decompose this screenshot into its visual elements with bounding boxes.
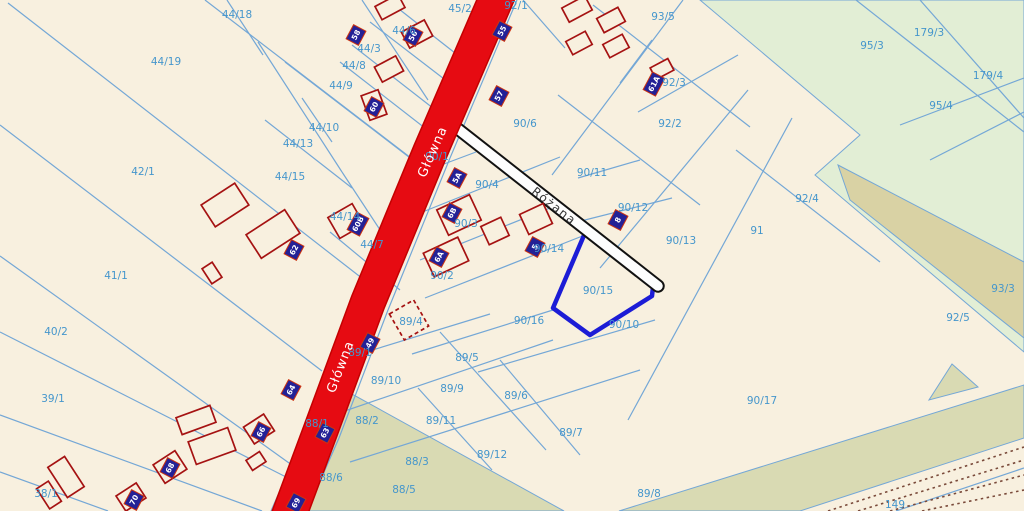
parcel-label-44-9: 44/9: [329, 80, 353, 92]
parcel-label-95-4: 95/4: [929, 100, 953, 112]
parcel-label-93-3: 93/3: [991, 283, 1015, 295]
parcel-label-89-9: 89/9: [440, 383, 464, 395]
parcel-label-44-8: 44/8: [342, 60, 366, 72]
parcel-label-92-3: 92/3: [662, 77, 686, 89]
map-viewport[interactable]: 585655605761A5A60B626B6A5864636649687069…: [0, 0, 1024, 511]
parcel-label-88-1: 88/1: [305, 418, 329, 430]
parcel-label-95-3: 95/3: [860, 40, 884, 52]
parcel-label-90-10: 90/10: [609, 319, 639, 331]
parcel-label-44-10: 44/10: [309, 122, 339, 134]
parcel-label-93-5: 93/5: [651, 11, 675, 23]
parcel-label-44-14: 44/14: [330, 211, 361, 223]
parcel-label-90-11: 90/11: [577, 167, 607, 179]
parcel-label-89-6: 89/6: [504, 390, 528, 402]
parcel-label-179-4: 179/4: [973, 70, 1004, 82]
parcel-label-89-10: 89/10: [371, 375, 401, 387]
parcel-label-39-1: 39/1: [41, 393, 65, 405]
parcel-label-92-1: 92/1: [504, 0, 528, 12]
parcel-label-90-4: 90/4: [475, 179, 499, 191]
parcel-label-44-19: 44/19: [151, 56, 181, 68]
parcel-label-91: 91: [750, 225, 763, 237]
parcel-label-41-1: 41/1: [104, 270, 128, 282]
parcel-label-90-14: 90/14: [534, 243, 565, 255]
parcel-label-90-2: 90/2: [430, 270, 454, 282]
cadastral-map-canvas[interactable]: 585655605761A5A60B626B6A5864636649687069…: [0, 0, 1024, 511]
parcel-label-44-15: 44/15: [275, 171, 305, 183]
parcel-label-179-3: 179/3: [914, 27, 944, 39]
parcel-label-89-5: 89/5: [455, 352, 479, 364]
parcel-label-89-8: 89/8: [637, 488, 661, 500]
parcel-label-44-7: 44/7: [360, 239, 384, 251]
parcel-label-44-18: 44/18: [222, 9, 252, 21]
parcel-label-90-12: 90/12: [618, 202, 648, 214]
parcel-label-88-6: 88/6: [319, 472, 343, 484]
parcel-label-149: 149: [885, 499, 905, 511]
parcel-label-90-16: 90/16: [514, 315, 545, 327]
parcel-label-89-12: 89/12: [477, 449, 507, 461]
parcel-label-90-3: 90/3: [454, 218, 478, 230]
parcel-label-89-7: 89/7: [559, 427, 583, 439]
parcel-label-45-2: 45/2: [448, 3, 472, 15]
parcel-label-90-6: 90/6: [513, 118, 537, 130]
parcel-label-92-5: 92/5: [946, 312, 970, 324]
parcel-label-90-13: 90/13: [666, 235, 696, 247]
parcel-label-89-4: 89/4: [399, 316, 423, 328]
parcel-label-88-3: 88/3: [405, 456, 429, 468]
parcel-label-88-2: 88/2: [355, 415, 379, 427]
parcel-label-44-6: 44/6: [392, 25, 416, 37]
parcel-label-88-5: 88/5: [392, 484, 416, 496]
parcel-label-89-11: 89/11: [426, 415, 456, 427]
parcel-label-44-13: 44/13: [283, 138, 313, 150]
parcel-label-42-1: 42/1: [131, 166, 155, 178]
parcel-label-38-1: 38/1: [34, 488, 58, 500]
parcel-label-90-15: 90/15: [583, 285, 613, 297]
parcel-label-92-2: 92/2: [658, 118, 682, 130]
parcel-label-90-17: 90/17: [747, 395, 777, 407]
parcel-label-44-3: 44/3: [357, 43, 381, 55]
parcel-label-92-4: 92/4: [795, 193, 819, 205]
parcel-label-40-2: 40/2: [44, 326, 68, 338]
